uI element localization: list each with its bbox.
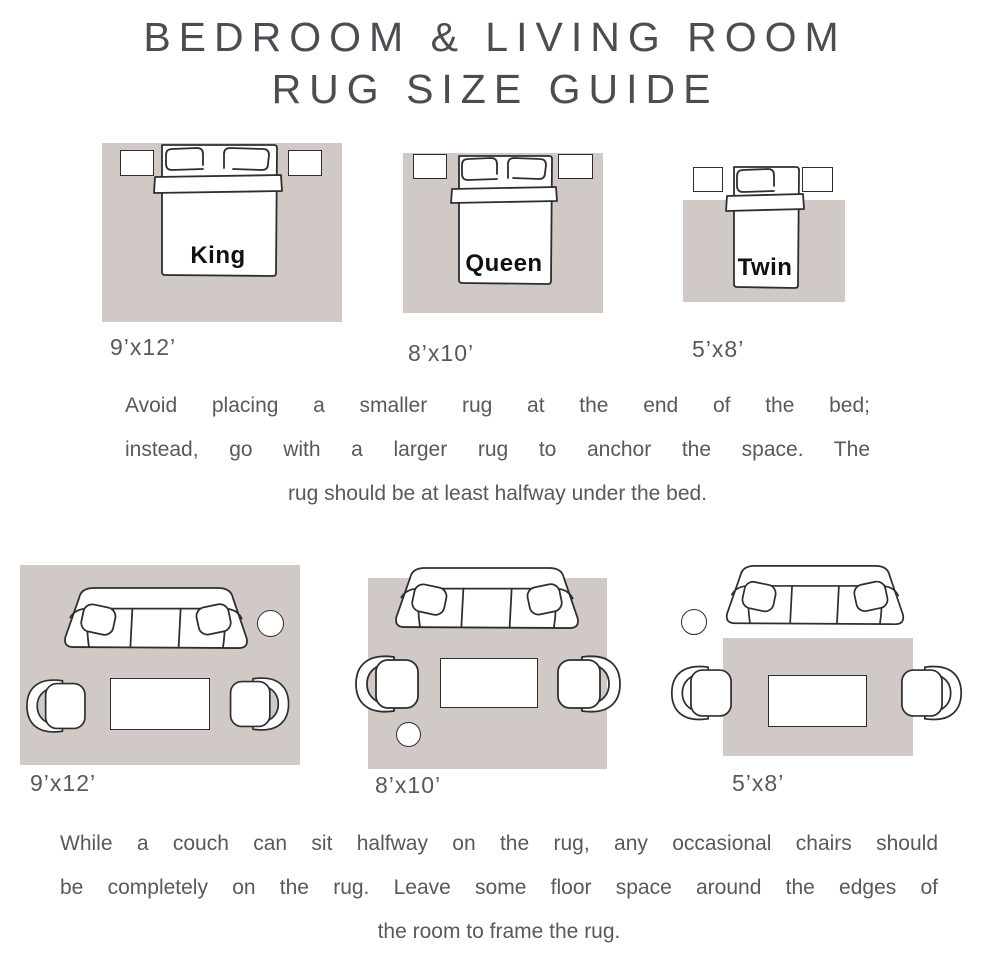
- living-room-note-line: be completely on the rug. Leave some flo…: [60, 866, 938, 910]
- living-room-note: While a couch can sit halfway on the rug…: [60, 822, 938, 954]
- nightstand-left: [413, 154, 447, 179]
- bedroom-note-line: instead, go with a larger rug to anchor …: [125, 428, 870, 472]
- coffee-table: [768, 675, 867, 727]
- armchair-left-drawing: [352, 653, 420, 715]
- bed-size-label: Queen: [455, 250, 553, 278]
- living-room-note-line: the room to frame the rug.: [60, 910, 938, 954]
- bedroom-note-line: Avoid placing a smaller rug at the end o…: [125, 384, 870, 428]
- nightstand-left: [120, 150, 154, 176]
- bedroom-diagram-king: King 9’x12’: [95, 138, 350, 373]
- rug-size-label: 9’x12’: [30, 770, 96, 797]
- armchair-right-drawing: [228, 675, 293, 733]
- rug-size-label: 8’x10’: [408, 340, 474, 367]
- bedroom-note: Avoid placing a smaller rug at the end o…: [125, 384, 870, 516]
- living-room-note-line: While a couch can sit halfway on the rug…: [60, 822, 938, 866]
- rug-size-label: 8’x10’: [375, 772, 441, 799]
- sofa-drawing: [393, 565, 581, 632]
- nightstand-right: [558, 154, 593, 179]
- side-table: [257, 610, 284, 637]
- page-title-line-2: RUG SIZE GUIDE: [0, 66, 990, 113]
- bedroom-diagram-queen: Queen 8’x10’: [400, 138, 630, 373]
- sofa-drawing: [724, 563, 906, 628]
- living-room-diagram-9x12: 9’x12’: [15, 558, 315, 808]
- armchair-right-drawing: [900, 663, 965, 723]
- living-room-diagram-5x8: 5’x8’: [660, 558, 980, 808]
- living-room-diagram-8x10: 8’x10’: [345, 558, 635, 808]
- page-title-line-1: BEDROOM & LIVING ROOM: [0, 14, 990, 61]
- side-table: [396, 722, 421, 747]
- rug-size-label: 9’x12’: [110, 334, 176, 361]
- sofa-drawing: [62, 585, 250, 652]
- armchair-left-drawing: [22, 677, 88, 735]
- armchair-left-drawing: [668, 663, 733, 723]
- bed-size-label: King: [158, 242, 278, 270]
- side-table: [681, 609, 707, 635]
- rug-size-label: 5’x8’: [732, 770, 784, 797]
- rug-size-label: 5’x8’: [692, 336, 744, 363]
- nightstand-left: [693, 167, 723, 192]
- rug-size-guide-page: BEDROOM & LIVING ROOM RUG SIZE GUIDE Kin…: [0, 0, 990, 962]
- nightstand-right: [288, 150, 322, 176]
- nightstand-right: [802, 167, 833, 192]
- coffee-table: [110, 678, 210, 730]
- coffee-table: [440, 658, 538, 708]
- bedroom-note-line: rug should be at least halfway under the…: [125, 472, 870, 516]
- bedroom-diagram-twin: Twin 5’x8’: [680, 138, 855, 373]
- bed-size-label: Twin: [730, 254, 800, 282]
- armchair-right-drawing: [556, 653, 624, 715]
